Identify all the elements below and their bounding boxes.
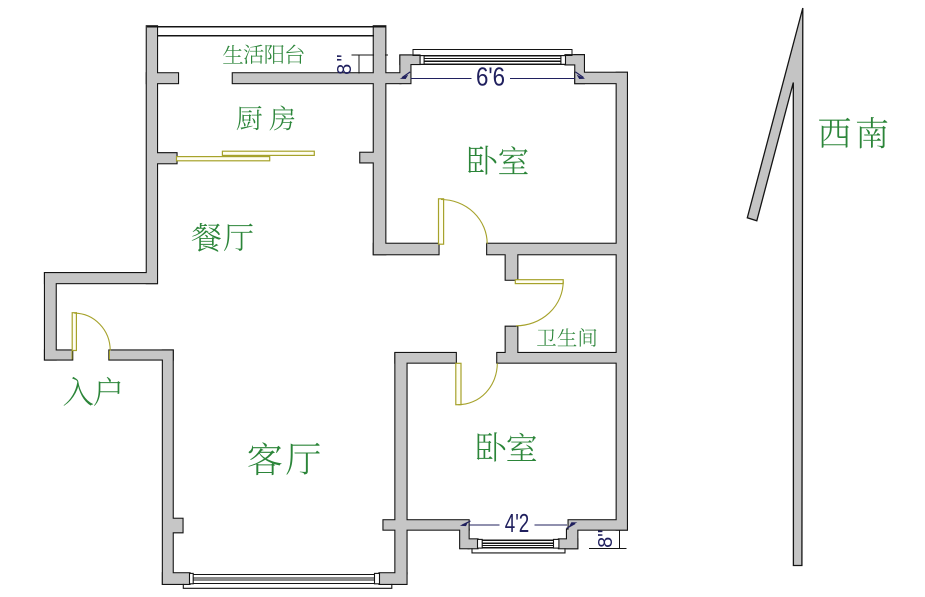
- svg-text:8: 8: [334, 64, 356, 75]
- svg-text:8": 8": [595, 530, 617, 548]
- svg-text:4'2: 4'2: [505, 510, 530, 538]
- svg-text:": ": [334, 54, 356, 61]
- svg-text:6'6: 6'6: [476, 64, 505, 92]
